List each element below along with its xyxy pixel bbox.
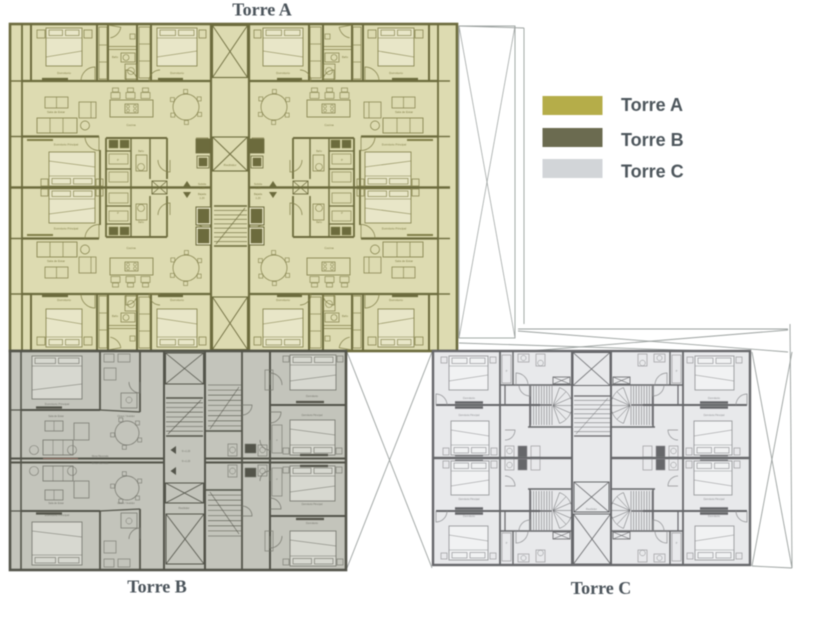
svg-text:Baño: Baño — [342, 314, 349, 318]
svg-text:Dormitorio: Dormitorio — [306, 394, 319, 398]
svg-text:Dormitorio: Dormitorio — [389, 298, 403, 302]
svg-text:Torre B: Torre B — [127, 577, 187, 597]
svg-text:Dormitorio Principal: Dormitorio Principal — [302, 503, 323, 506]
svg-text:Baño: Baño — [342, 55, 349, 59]
svg-text:1.20: 1.20 — [255, 186, 261, 190]
svg-text:Baño: Baño — [316, 150, 322, 153]
svg-text:Recibidor: Recibidor — [179, 506, 190, 510]
svg-text:Mesa Ravenala: Mesa Ravenala — [92, 455, 109, 458]
svg-text:Dormitorio: Dormitorio — [463, 396, 476, 400]
svg-text:Baño: Baño — [112, 55, 119, 59]
svg-text:Cocina: Cocina — [324, 246, 334, 250]
svg-text:Dormitorio: Dormitorio — [170, 298, 184, 302]
svg-text:Closet / Vestidor: Closet / Vestidor — [117, 502, 135, 505]
svg-text:Dormitorio Principal: Dormitorio Principal — [382, 227, 407, 231]
svg-text:Dormitorio: Dormitorio — [389, 71, 403, 75]
svg-text:Closet / Vestidor: Closet / Vestidor — [117, 415, 135, 418]
svg-text:Dormitorio Principal: Dormitorio Principal — [54, 227, 79, 231]
svg-text:P: P — [341, 158, 343, 162]
svg-text:Dormitorio: Dormitorio — [306, 521, 319, 525]
svg-text:P: P — [341, 211, 343, 215]
svg-text:Dormitorio: Dormitorio — [708, 396, 721, 400]
svg-text:Dormitorio: Dormitorio — [57, 71, 71, 75]
svg-text:Sala de Estar: Sala de Estar — [47, 259, 65, 263]
svg-text:Mesa Ravenala: Mesa Ravenala — [92, 462, 109, 465]
svg-text:P: P — [117, 211, 119, 215]
svg-text:Subida: Subida — [198, 182, 207, 186]
svg-text:Baño: Baño — [112, 314, 119, 318]
svg-text:Dormitorio: Dormitorio — [170, 71, 184, 75]
svg-text:Dormitorio: Dormitorio — [463, 514, 476, 518]
svg-text:1.20: 1.20 — [255, 196, 261, 200]
svg-text:Dormitorio Principal: Dormitorio Principal — [704, 414, 725, 417]
svg-text:Sala de Estar: Sala de Estar — [395, 110, 413, 114]
svg-text:Sala de Estar: Sala de Estar — [48, 501, 64, 505]
svg-text:Cocina: Cocina — [324, 123, 334, 127]
svg-text:Torre C: Torre C — [621, 162, 684, 182]
svg-text:N +1.20: N +1.20 — [182, 450, 191, 453]
svg-text:P: P — [117, 158, 119, 162]
svg-text:Cocina: Cocina — [126, 246, 136, 250]
svg-text:Torre B: Torre B — [621, 130, 684, 150]
svg-text:Cocina: Cocina — [126, 123, 136, 127]
svg-text:1.20: 1.20 — [199, 196, 205, 200]
svg-text:Recibidor: Recibidor — [224, 163, 237, 167]
svg-text:Sala de Estar: Sala de Estar — [48, 414, 64, 418]
svg-text:Sala de Estar: Sala de Estar — [47, 110, 65, 114]
svg-text:Dormitorio Principal: Dormitorio Principal — [459, 414, 480, 417]
svg-text:1.20: 1.20 — [199, 186, 205, 190]
svg-text:Dormitorio Principal: Dormitorio Principal — [45, 402, 70, 406]
svg-text:Baño: Baño — [316, 221, 322, 224]
svg-text:Dormitorio: Dormitorio — [276, 71, 290, 75]
svg-text:Torre C: Torre C — [571, 578, 632, 598]
svg-text:Torre A: Torre A — [621, 95, 683, 115]
svg-text:Torre A: Torre A — [232, 0, 292, 20]
svg-text:Dormitorio Principal: Dormitorio Principal — [302, 414, 323, 417]
svg-text:Subida: Subida — [254, 182, 263, 186]
svg-text:Sala de Estar: Sala de Estar — [395, 259, 413, 263]
svg-text:Dormitorio: Dormitorio — [708, 514, 721, 518]
svg-text:Dormitorio Principal: Dormitorio Principal — [704, 498, 725, 501]
svg-text:Bajada: Bajada — [254, 192, 263, 196]
svg-text:Dormitorio Principal: Dormitorio Principal — [459, 498, 480, 501]
svg-text:Recibidor: Recibidor — [586, 507, 597, 511]
svg-text:Dormitorio: Dormitorio — [276, 298, 290, 302]
svg-text:Dormitorio Principal: Dormitorio Principal — [382, 143, 407, 147]
svg-text:Bajada: Bajada — [198, 192, 207, 196]
svg-text:Dormitorio: Dormitorio — [57, 298, 71, 302]
svg-text:N +1.20: N +1.20 — [182, 460, 191, 463]
svg-text:Dormitorio Principal: Dormitorio Principal — [54, 143, 79, 147]
svg-text:Baño: Baño — [138, 221, 144, 224]
svg-text:Baño: Baño — [138, 150, 144, 153]
